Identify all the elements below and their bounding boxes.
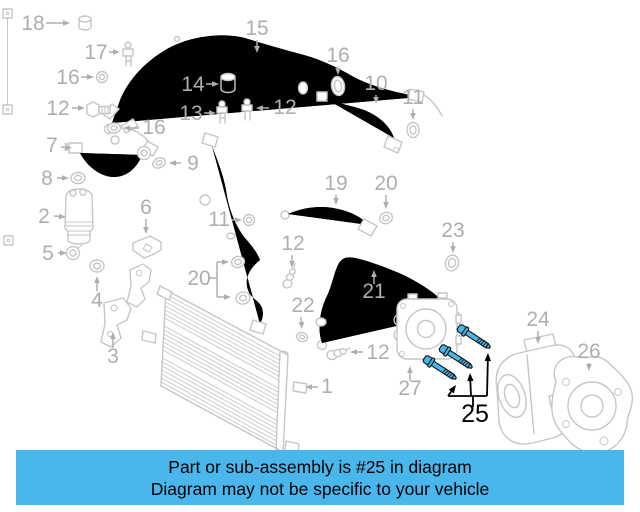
svg-text:11: 11 — [402, 86, 424, 109]
svg-text:13: 13 — [179, 102, 202, 125]
svg-text:20: 20 — [374, 172, 397, 195]
valve-12-center — [277, 264, 305, 290]
svg-text:9: 9 — [187, 152, 199, 175]
svg-text:5: 5 — [42, 242, 54, 265]
svg-text:14: 14 — [181, 73, 205, 96]
center-hose — [200, 133, 266, 334]
part-label-12: 12 — [46, 97, 85, 120]
parts-diagram: 1817161216782596431514131216101111121920… — [0, 0, 640, 512]
part-label-27: 27 — [398, 366, 421, 400]
part-label-8: 8 — [41, 167, 69, 190]
part-label-12: 12 — [281, 232, 304, 268]
svg-text:19: 19 — [324, 172, 347, 195]
svg-text:21: 21 — [362, 280, 385, 303]
svg-text:3: 3 — [107, 345, 119, 368]
part-label-2: 2 — [38, 205, 66, 228]
svg-text:17: 17 — [84, 41, 107, 64]
svg-text:25: 25 — [461, 400, 489, 428]
svg-text:18: 18 — [21, 12, 44, 35]
highlight-banner: Part or sub-assembly is #25 in diagram D… — [16, 450, 624, 505]
part-label-22: 22 — [291, 294, 314, 329]
svg-text:12: 12 — [273, 96, 296, 119]
svg-text:10: 10 — [364, 72, 387, 95]
banner-line-1: Part or sub-assembly is #25 in diagram — [168, 456, 471, 478]
clutch-26 — [552, 356, 633, 452]
svg-text:16: 16 — [56, 66, 79, 89]
svg-text:16: 16 — [326, 44, 349, 67]
svg-text:11: 11 — [208, 208, 230, 231]
svg-text:7: 7 — [46, 134, 58, 157]
svg-text:2: 2 — [38, 205, 50, 228]
part-label-7: 7 — [46, 134, 72, 157]
svg-text:8: 8 — [41, 167, 53, 190]
svg-text:22: 22 — [291, 294, 314, 317]
svg-text:12: 12 — [281, 232, 304, 255]
svg-text:26: 26 — [577, 340, 600, 363]
part-label-12: 12 — [350, 341, 390, 364]
svg-text:6: 6 — [140, 196, 152, 219]
part-label-16: 16 — [56, 66, 94, 89]
part-label-23: 23 — [441, 219, 464, 253]
part-label-9: 9 — [169, 152, 199, 175]
svg-text:23: 23 — [441, 219, 464, 242]
banner-line-2: Diagram may not be specific to your vehi… — [151, 478, 489, 500]
sensor-12 — [327, 348, 350, 360]
part-label-17: 17 — [84, 41, 120, 64]
part-label-20: 20 — [374, 172, 397, 209]
part-label-20: 20 — [187, 259, 231, 300]
part-label-18: 18 — [21, 12, 70, 35]
part-label-1: 1 — [305, 375, 333, 398]
part-label-4: 4 — [91, 276, 103, 312]
svg-text:12: 12 — [366, 341, 389, 364]
part-label-6: 6 — [140, 196, 152, 234]
svg-text:20: 20 — [187, 267, 210, 290]
svg-text:15: 15 — [245, 17, 268, 40]
svg-text:12: 12 — [46, 97, 69, 120]
svg-text:4: 4 — [91, 289, 103, 312]
svg-text:1: 1 — [321, 375, 333, 398]
part-label-11: 11 — [402, 86, 424, 120]
parts-diagram-page: 1817161216782596431514131216101111121920… — [0, 0, 640, 512]
part-label-19: 19 — [324, 172, 347, 205]
svg-text:16: 16 — [142, 116, 165, 139]
part-label-5: 5 — [42, 242, 67, 265]
svg-text:24: 24 — [526, 308, 550, 331]
svg-text:27: 27 — [398, 377, 421, 400]
condenser — [142, 286, 307, 453]
